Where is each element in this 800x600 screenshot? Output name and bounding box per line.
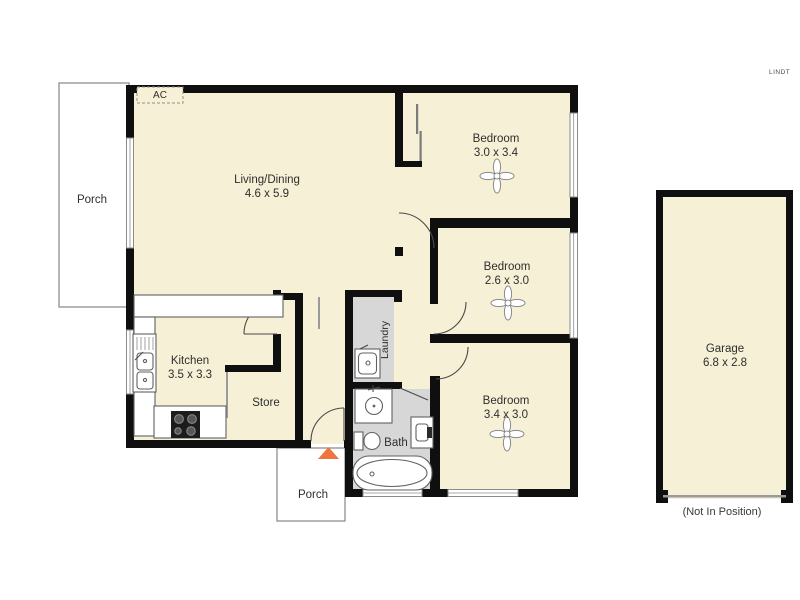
room-dims: 2.6 x 3.0	[484, 274, 531, 288]
wall-left-b	[126, 248, 134, 332]
hall-screen-line	[318, 297, 320, 329]
kitchen-sink	[133, 334, 156, 392]
floor-fills	[130, 89, 790, 499]
wall-bottom-left	[126, 440, 311, 448]
wall-living-door-stub	[395, 247, 403, 256]
garage-door-line	[663, 495, 786, 498]
watermark-text: LINDT	[769, 69, 790, 76]
room-label-porch-left: Porch	[77, 193, 107, 207]
room-label-kitchen: Kitchen 3.5 x 3.3	[168, 354, 212, 382]
bathtub-icon	[353, 456, 432, 490]
wall-kitchen-store	[225, 365, 281, 372]
room-label-porch-bottom: Porch	[298, 488, 328, 502]
room-label-store: Store	[252, 396, 280, 410]
room-label-bedroom1: Bedroom 3.0 x 3.4	[473, 132, 520, 160]
ac-unit-label: AC	[153, 89, 167, 103]
garage-note: (Not In Position)	[683, 505, 762, 519]
room-label-laundry: Laundry	[378, 321, 392, 359]
window-bedroom1-right	[570, 113, 578, 197]
room-name: Living/Dining	[234, 174, 300, 186]
room-name: Porch	[298, 489, 328, 501]
cooktop-icon	[171, 411, 200, 438]
room-label-living: Living/Dining 4.6 x 5.9	[234, 173, 300, 201]
room-label-bedroom3: Bedroom 3.4 x 3.0	[483, 394, 530, 422]
wall-laundry-left	[345, 297, 353, 489]
garage-wall-left	[656, 190, 663, 503]
wall-bedroom2-left	[430, 228, 438, 304]
room-dims: 3.4 x 3.0	[483, 408, 530, 422]
room-label-bedroom2: Bedroom 2.6 x 3.0	[484, 260, 531, 288]
laundry-tub-icon	[355, 345, 380, 378]
wall-store-right	[295, 293, 303, 440]
wall-closet-stub	[395, 161, 422, 167]
wall-living-bed1	[395, 93, 403, 161]
room-name: Bedroom	[483, 395, 530, 407]
wall-left-a	[126, 85, 134, 140]
wall-left-c	[126, 394, 134, 448]
wall-laundry-right-stub	[394, 290, 402, 302]
shower-icon	[355, 385, 392, 423]
room-name: Porch	[77, 194, 107, 206]
toilet-icon	[354, 432, 380, 450]
window-bedroom2-right	[570, 233, 578, 338]
window-bedroom3-bottom	[448, 490, 518, 497]
room-name: Bedroom	[484, 261, 531, 273]
room-dims: 6.8 x 2.8	[703, 356, 747, 370]
room-name: Kitchen	[171, 355, 209, 367]
wall-bed1-bed2	[430, 218, 578, 228]
room-label-bath: Bath	[384, 436, 408, 450]
room-dims: 4.6 x 5.9	[234, 187, 300, 201]
room-name: Garage	[706, 343, 744, 355]
floor-plan: Living/Dining 4.6 x 5.9 Bedroom 3.0 x 3.…	[0, 0, 800, 600]
floor-plan-drawing	[0, 0, 800, 600]
room-name: Store	[252, 397, 280, 409]
wall-bed2-bed3	[430, 334, 578, 343]
vanity-icon	[411, 417, 433, 448]
wall-top	[126, 85, 578, 93]
wall-laundry-top	[345, 290, 402, 297]
window-living-left	[127, 138, 134, 248]
room-dims: 3.0 x 3.4	[473, 146, 520, 160]
room-name: Laundry	[379, 321, 391, 359]
garage-wall-right	[786, 190, 793, 503]
kitchen-counter-top	[134, 295, 283, 317]
room-name: Bedroom	[473, 133, 520, 145]
room-dims: 3.5 x 3.3	[168, 368, 212, 382]
room-label-garage: Garage 6.8 x 2.8	[703, 342, 747, 370]
window-kitchen-left	[127, 330, 134, 394]
garage-wall-top	[656, 190, 793, 197]
room-name: Bath	[384, 437, 408, 449]
